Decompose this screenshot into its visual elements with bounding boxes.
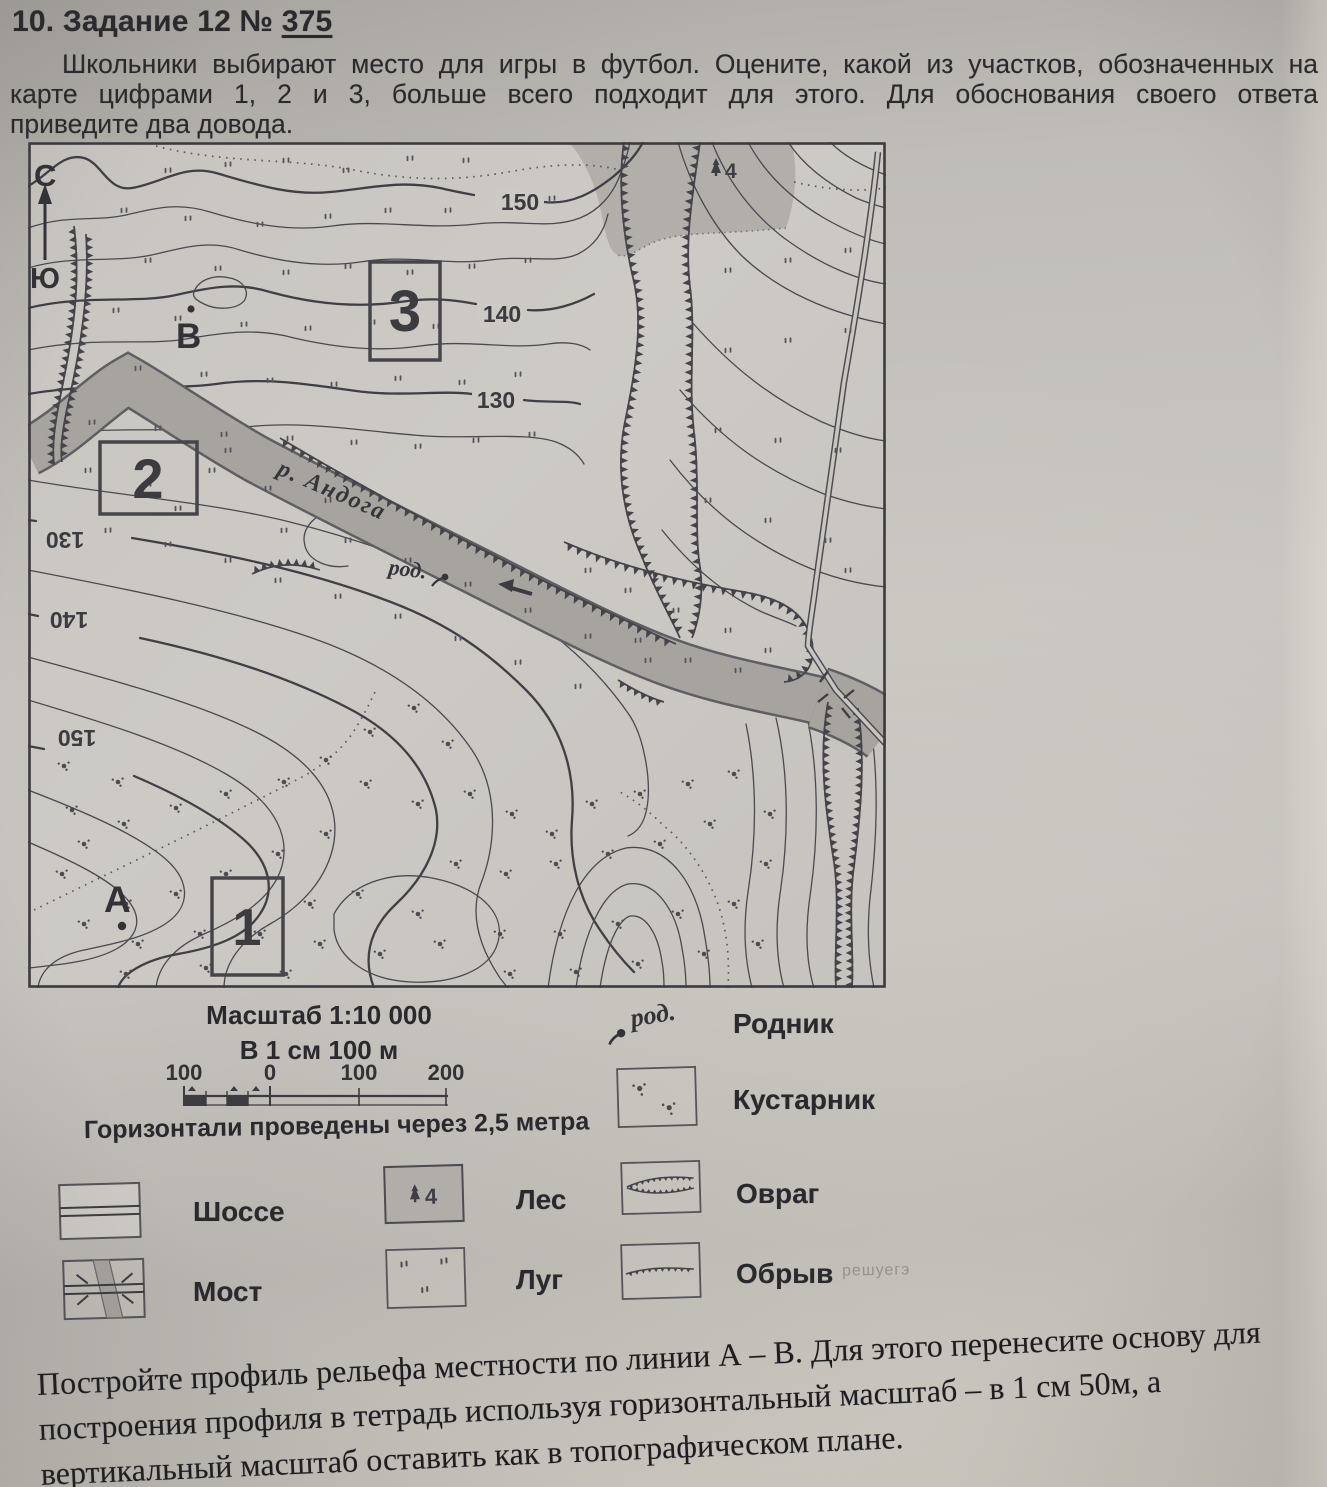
area-label-1: 1	[233, 899, 262, 957]
svg-text:100: 100	[341, 1060, 378, 1085]
task-line: приведите два довода.	[10, 109, 1318, 139]
svg-text:В: В	[176, 317, 201, 356]
contour-label-140-mirrored: 140	[50, 607, 88, 633]
legend-label-spring: Родник	[733, 1008, 834, 1040]
shrub-symbol	[615, 1065, 701, 1136]
svg-text:род.: род.	[626, 998, 677, 1033]
spring-symbol: род.	[607, 998, 718, 1056]
svg-text:4: 4	[425, 1184, 439, 1209]
meadow-symbol	[384, 1246, 468, 1315]
highway-symbol	[57, 1181, 145, 1248]
contour-label-150-mirrored: 150	[58, 725, 96, 751]
svg-text:0: 0	[264, 1060, 276, 1085]
area-label-2: 2	[132, 447, 163, 510]
task-line: Школьники выбирают место для игры в футб…	[10, 49, 1318, 79]
svg-text:200: 200	[428, 1060, 465, 1085]
site-watermark: решуегэ	[842, 1261, 911, 1280]
contour-label-130-mirrored: 130	[46, 527, 84, 553]
legend-label-shrub: Кустарник	[733, 1084, 875, 1116]
task-number: 375	[282, 5, 333, 38]
exam-page-photo: 10. Задание 12 № 375 Школьники выбирают …	[0, 0, 1327, 1487]
profile-task-text: Постройте профиль рельефа местности по л…	[36, 1303, 1327, 1487]
legend-label-highway: Шоссе	[193, 1196, 285, 1228]
title-text: 10. Задание 12 №	[12, 5, 282, 38]
topographic-map: 4	[28, 142, 886, 988]
svg-text:А: А	[104, 879, 131, 920]
contour-label-150: 150	[501, 189, 539, 215]
cliff-symbol	[619, 1241, 703, 1308]
legend-label-ravine: Овраг	[736, 1178, 819, 1210]
page-title: 10. Задание 12 № 375	[12, 5, 332, 39]
area-label-3: 3	[389, 279, 421, 344]
task-text: Школьники выбирают место для игры в футб…	[10, 49, 1318, 139]
legend-label-meadow: Луг	[516, 1264, 563, 1296]
contour-label-130: 130	[477, 387, 515, 413]
contour-label-140: 140	[483, 301, 521, 327]
svg-text:100: 100	[166, 1060, 203, 1085]
legend-label-cliff: Обрыв	[736, 1258, 833, 1290]
legend-label-forest: Лес	[516, 1184, 566, 1216]
scale-block: Масштаб 1:10 000 В 1 см 100 м 100 0 100 …	[84, 1000, 564, 1066]
forest-symbol: 4	[382, 1163, 466, 1232]
scale-title: Масштаб 1:10 000	[84, 1000, 554, 1031]
bridge-symbol	[61, 1257, 147, 1326]
ravine-symbol	[619, 1159, 703, 1223]
svg-text:род.: род.	[385, 554, 428, 584]
svg-text:Ю: Ю	[30, 263, 60, 295]
task-line: карте цифрами 1, 2 и 3, больше всего под…	[10, 79, 1318, 109]
scale-bar: 100 0 100 200	[150, 1058, 480, 1116]
legend-label-bridge: Мост	[193, 1276, 262, 1308]
